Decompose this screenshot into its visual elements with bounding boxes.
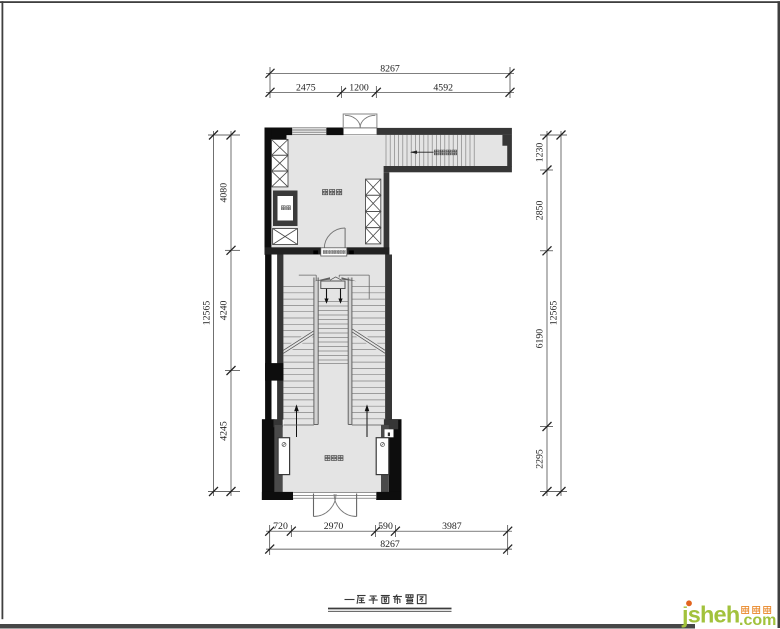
- svg-text:1200: 1200: [349, 82, 369, 93]
- svg-text:12565: 12565: [549, 301, 560, 326]
- svg-text:2970: 2970: [324, 521, 344, 532]
- svg-text:.com: .com: [739, 612, 776, 629]
- svg-text:2475: 2475: [296, 82, 316, 93]
- svg-text:4240: 4240: [219, 301, 230, 321]
- svg-text:3987: 3987: [442, 521, 462, 532]
- svg-text:8267: 8267: [380, 63, 400, 74]
- svg-text:2850: 2850: [535, 201, 546, 221]
- svg-text:8267: 8267: [380, 539, 400, 550]
- svg-text:1230: 1230: [535, 143, 546, 163]
- svg-text:2295: 2295: [535, 449, 546, 469]
- svg-text:4080: 4080: [219, 183, 230, 203]
- svg-text:6190: 6190: [535, 329, 546, 349]
- svg-text:4245: 4245: [219, 421, 230, 441]
- svg-text:590: 590: [378, 521, 393, 532]
- svg-text:12565: 12565: [202, 301, 213, 326]
- svg-text:720: 720: [273, 521, 288, 532]
- svg-text:4592: 4592: [433, 82, 453, 93]
